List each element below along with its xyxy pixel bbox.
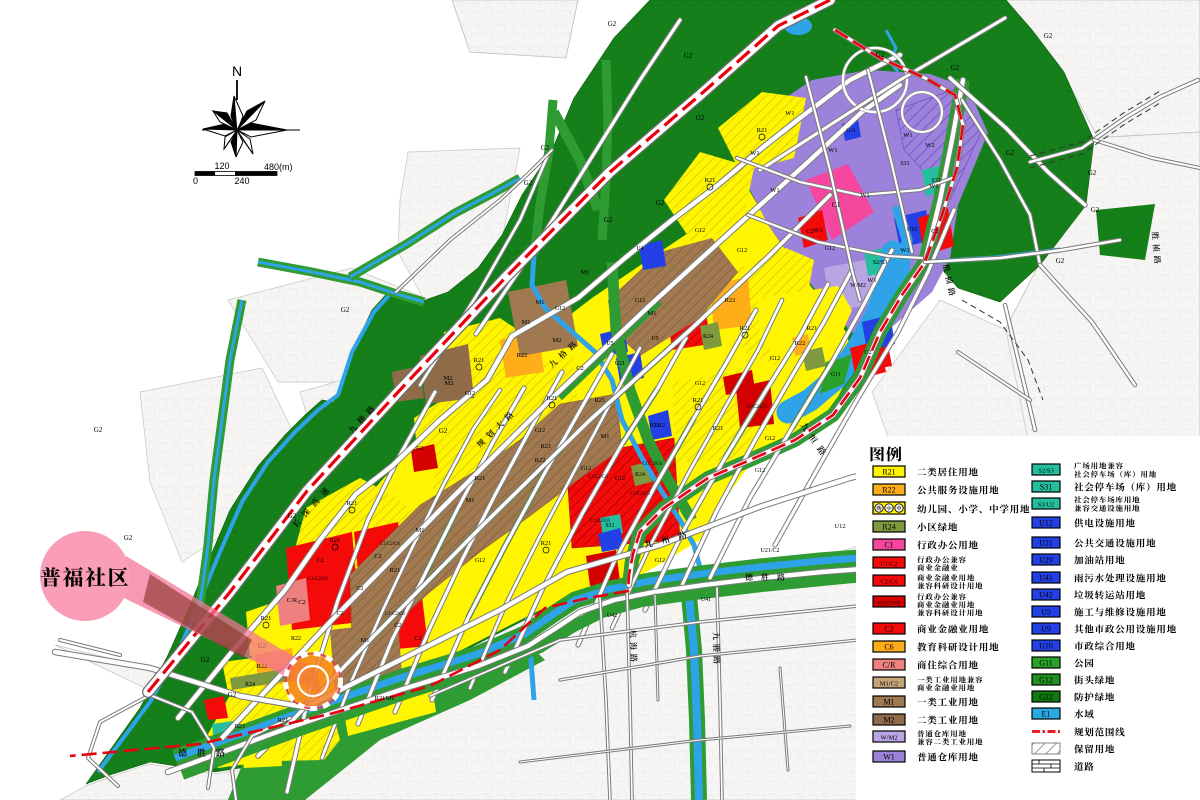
svg-text:U10: U10 [1039, 642, 1053, 651]
svg-text:R24: R24 [703, 334, 713, 340]
svg-text:R24: R24 [245, 682, 255, 688]
svg-text:G2: G2 [684, 52, 693, 60]
svg-text:R22: R22 [795, 340, 806, 347]
svg-text:C2: C2 [576, 365, 584, 372]
svg-text:G12: G12 [695, 381, 705, 387]
svg-text:W1: W1 [929, 183, 938, 190]
svg-text:M2: M2 [883, 716, 894, 725]
svg-text:R21: R21 [278, 717, 289, 724]
svg-text:C1/C2/C6: C1/C2/C6 [746, 405, 766, 410]
svg-text:C/R: C/R [287, 597, 298, 604]
svg-text:U10: U10 [907, 227, 917, 233]
svg-text:S2/S3: S2/S3 [873, 260, 887, 266]
svg-text:S2/S3: S2/S3 [1038, 468, 1054, 475]
svg-text:R21: R21 [705, 177, 716, 184]
svg-text:C2: C2 [374, 553, 382, 560]
svg-text:C1/C2/C6: C1/C2/C6 [308, 577, 328, 582]
svg-text:R21: R21 [882, 468, 895, 477]
svg-text:W1: W1 [860, 192, 869, 199]
svg-text:M2: M2 [443, 375, 452, 382]
svg-text:U41: U41 [701, 597, 711, 603]
svg-text:M1: M1 [360, 637, 369, 644]
svg-text:W1: W1 [883, 753, 895, 762]
svg-text:C1: C1 [884, 541, 893, 550]
svg-text:G12: G12 [635, 298, 645, 304]
svg-text:U41: U41 [1039, 574, 1053, 583]
svg-text:R21: R21 [330, 537, 341, 544]
svg-text:G12: G12 [765, 436, 775, 442]
svg-text:R21: R21 [390, 567, 401, 574]
svg-text:G12: G12 [475, 558, 485, 564]
svg-text:G2: G2 [608, 20, 617, 28]
svg-text:R22: R22 [535, 457, 546, 464]
svg-text:U9: U9 [651, 336, 658, 342]
svg-text:S31: S31 [931, 178, 940, 184]
svg-text:R21: R21 [261, 615, 272, 622]
svg-text:G12: G12 [695, 228, 705, 234]
svg-text:R21: R21 [347, 500, 358, 507]
svg-text:R21: R21 [740, 325, 751, 332]
svg-text:U29: U29 [1039, 556, 1053, 565]
svg-text:G2: G2 [1006, 149, 1015, 157]
svg-text:R21: R21 [475, 475, 486, 482]
svg-text:G2: G2 [94, 426, 103, 434]
svg-text:C1/C2/C6: C1/C2/C6 [588, 475, 608, 480]
svg-text:U12: U12 [834, 523, 845, 530]
svg-text:C1/C2/C6: C1/C2/C6 [642, 462, 662, 467]
svg-text:G2: G2 [341, 306, 350, 314]
svg-text:G2: G2 [1091, 206, 1100, 214]
svg-text:U21: U21 [846, 128, 856, 134]
svg-text:R21: R21 [235, 723, 246, 730]
svg-text:R22: R22 [517, 352, 528, 359]
svg-text:R24: R24 [635, 472, 645, 478]
svg-text:G2: G2 [201, 656, 210, 664]
svg-text:U5: U5 [606, 341, 613, 347]
svg-text:C2: C2 [356, 586, 363, 592]
svg-text:M1: M1 [883, 698, 894, 707]
svg-text:G2: G2 [416, 446, 423, 452]
svg-text:G12: G12 [465, 391, 475, 397]
svg-text:M1: M1 [600, 433, 609, 440]
svg-text:S31: S31 [900, 161, 909, 167]
svg-text:G12: G12 [555, 306, 565, 312]
svg-text:G2: G2 [951, 64, 960, 72]
svg-text:G2: G2 [604, 216, 613, 224]
svg-text:120: 120 [214, 161, 229, 171]
svg-text:M1: M1 [647, 310, 656, 317]
svg-text:U21: U21 [615, 361, 625, 367]
svg-text:C2: C2 [298, 599, 306, 606]
svg-text:G12: G12 [825, 246, 835, 252]
svg-text:C2: C2 [884, 625, 893, 634]
svg-text:G12: G12 [615, 476, 625, 482]
svg-text:E1: E1 [1042, 710, 1051, 719]
svg-text:U12: U12 [655, 423, 665, 429]
svg-text:G2: G2 [124, 534, 133, 542]
svg-text:R22: R22 [291, 636, 301, 642]
svg-text:0: 0 [193, 176, 198, 186]
svg-text:U5: U5 [1041, 608, 1051, 617]
svg-text:C2: C2 [394, 622, 402, 629]
svg-text:C1/C2: C1/C2 [881, 561, 898, 568]
svg-text:S31: S31 [1040, 483, 1052, 492]
svg-text:C6: C6 [884, 643, 893, 652]
svg-text:W/M2: W/M2 [881, 735, 898, 742]
svg-text:C2: C2 [414, 636, 421, 642]
svg-text:U42: U42 [1039, 591, 1053, 600]
svg-text:S3/U2: S3/U2 [1038, 502, 1055, 509]
svg-text:C2/C6: C2/C6 [881, 579, 899, 586]
svg-text:W/M2: W/M2 [850, 283, 866, 289]
svg-text:C2: C2 [931, 228, 939, 235]
svg-text:W1: W1 [867, 277, 876, 284]
svg-text:G12: G12 [770, 356, 780, 362]
svg-text:G2: G2 [288, 512, 297, 520]
svg-text:G2: G2 [876, 51, 885, 59]
svg-text:U21: U21 [1039, 539, 1053, 548]
svg-text:480(m): 480(m) [264, 162, 293, 172]
svg-text:M1: M1 [535, 299, 544, 306]
svg-text:R21: R21 [595, 397, 606, 404]
svg-text:C2: C2 [864, 349, 872, 356]
svg-text:R21: R21 [713, 425, 724, 432]
svg-text:U9: U9 [1041, 625, 1051, 634]
svg-text:C1: C1 [832, 201, 841, 209]
svg-text:R24: R24 [882, 523, 895, 532]
svg-text:C1/C2/C6: C1/C2/C6 [878, 601, 901, 607]
svg-text:R21: R21 [541, 540, 552, 547]
svg-text:C2: C2 [336, 611, 343, 617]
svg-text:G12: G12 [1039, 676, 1053, 685]
svg-text:C1/C2/C6: C1/C2/C6 [380, 542, 400, 547]
svg-text:G2: G2 [439, 427, 448, 435]
svg-text:W1: W1 [785, 110, 794, 117]
svg-text:U4: U4 [636, 246, 643, 252]
svg-text:M2: M2 [552, 337, 561, 344]
svg-text:G12: G12 [535, 428, 545, 434]
svg-text:U12: U12 [1039, 519, 1053, 528]
svg-text:W1: W1 [900, 247, 909, 254]
svg-text:G12: G12 [655, 558, 665, 564]
svg-text:W1: W1 [903, 132, 912, 139]
svg-text:G2: G2 [1088, 169, 1097, 177]
svg-text:G2: G2 [228, 691, 237, 699]
svg-text:240: 240 [234, 176, 249, 186]
svg-text:W1: W1 [828, 147, 837, 154]
svg-text:G2: G2 [1056, 257, 1065, 265]
svg-text:R21: R21 [375, 695, 386, 702]
svg-text:G12: G12 [737, 248, 747, 254]
svg-text:R21: R21 [541, 443, 552, 450]
svg-text:G2: G2 [696, 114, 705, 122]
svg-text:R21: R21 [807, 325, 818, 332]
svg-text:M1: M1 [465, 497, 474, 504]
svg-text:G2: G2 [541, 144, 550, 152]
svg-text:R22: R22 [882, 486, 895, 495]
svg-text:N: N [232, 63, 242, 79]
svg-text:G2: G2 [656, 199, 665, 207]
svg-text:R21: R21 [693, 397, 704, 404]
svg-text:R21: R21 [474, 357, 485, 364]
svg-text:M1: M1 [580, 269, 589, 276]
svg-text:W1: W1 [750, 150, 759, 157]
svg-text:C1/C2/C6: C1/C2/C6 [630, 492, 650, 497]
svg-text:M1: M1 [415, 527, 424, 534]
svg-text:C2: C2 [316, 557, 324, 564]
svg-text:G11: G11 [831, 372, 841, 378]
svg-text:R21: R21 [757, 127, 768, 134]
svg-text:G22: G22 [1039, 693, 1053, 702]
svg-text:C2: C2 [806, 228, 814, 235]
svg-text:G12: G12 [581, 466, 591, 472]
svg-text:U21/C2: U21/C2 [760, 548, 779, 554]
svg-text:G11: G11 [1039, 659, 1052, 668]
svg-text:G2: G2 [1044, 32, 1053, 40]
svg-text:R22: R22 [725, 297, 736, 304]
svg-text:G2: G2 [524, 179, 533, 187]
svg-text:W1: W1 [813, 227, 822, 234]
svg-text:U42: U42 [607, 613, 617, 619]
svg-text:C/R: C/R [883, 661, 897, 670]
svg-text:M1: M1 [385, 695, 394, 702]
svg-text:S31: S31 [605, 523, 614, 529]
svg-text:G12: G12 [755, 468, 765, 474]
svg-text:C1/C2/C6: C1/C2/C6 [385, 612, 405, 617]
svg-text:M1/C2: M1/C2 [880, 681, 898, 688]
svg-text:W2: W2 [925, 142, 934, 149]
svg-text:W1: W1 [770, 187, 779, 194]
svg-text:M1: M1 [521, 319, 530, 326]
svg-text:R21: R21 [547, 395, 558, 402]
